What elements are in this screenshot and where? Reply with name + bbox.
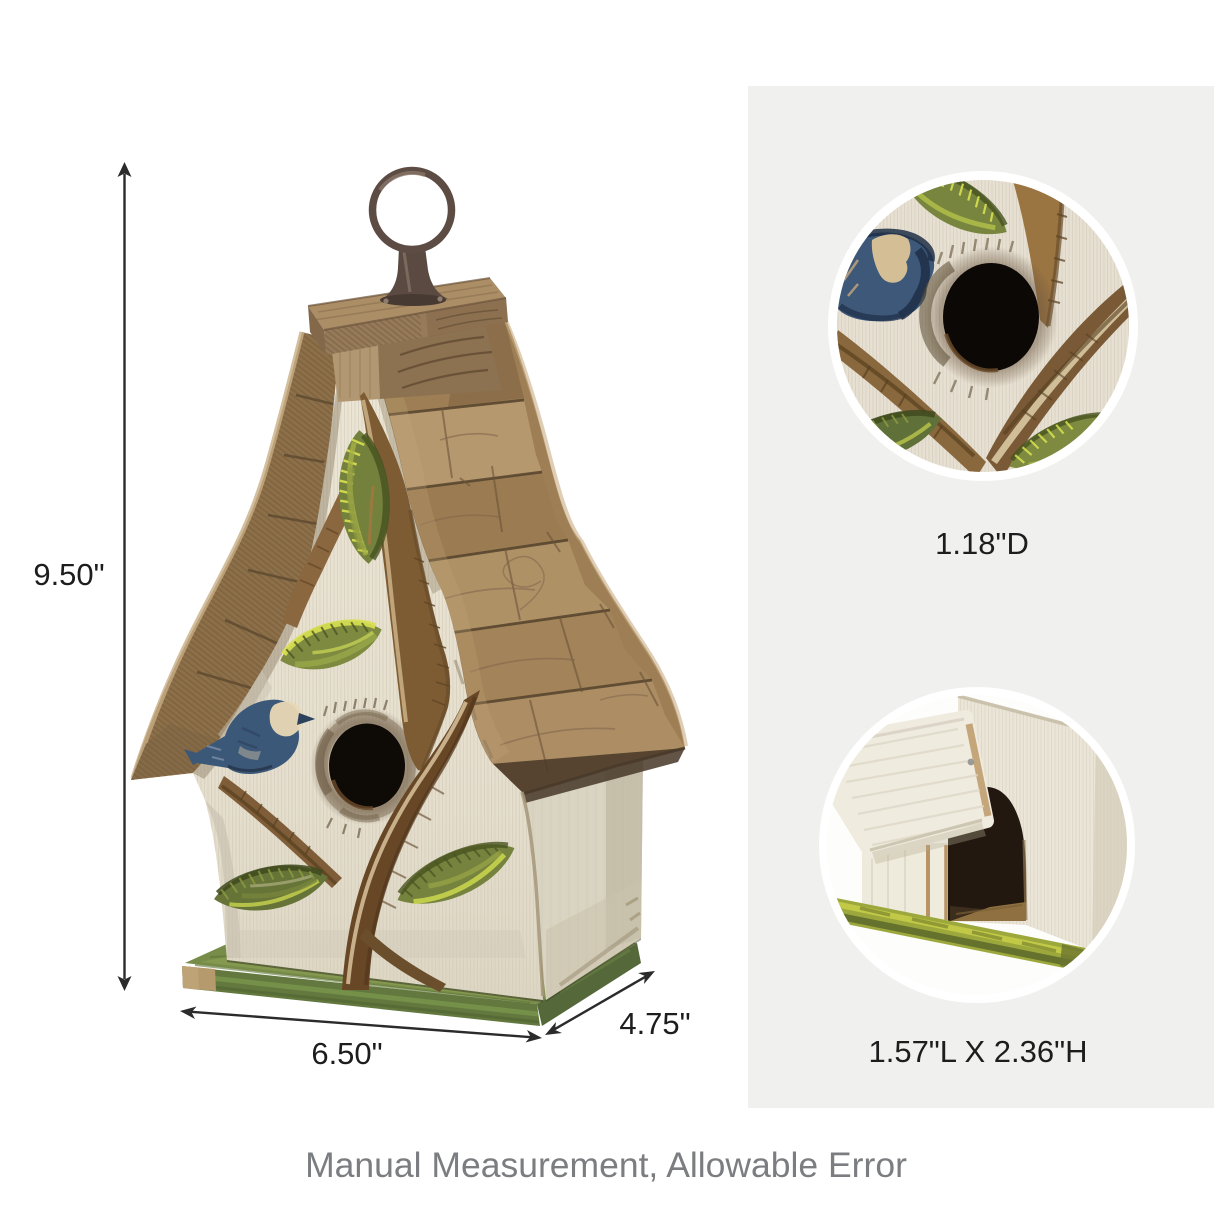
svg-text:1.57"L X 2.36"H: 1.57"L X 2.36"H <box>868 1034 1087 1069</box>
svg-text:1.18"D: 1.18"D <box>935 526 1029 561</box>
svg-text:6.50": 6.50" <box>311 1036 382 1071</box>
svg-text:4.75": 4.75" <box>619 1006 690 1041</box>
svg-text:Manual Measurement, Allowable: Manual Measurement, Allowable Error <box>305 1145 907 1185</box>
svg-text:9.50": 9.50" <box>33 557 104 592</box>
